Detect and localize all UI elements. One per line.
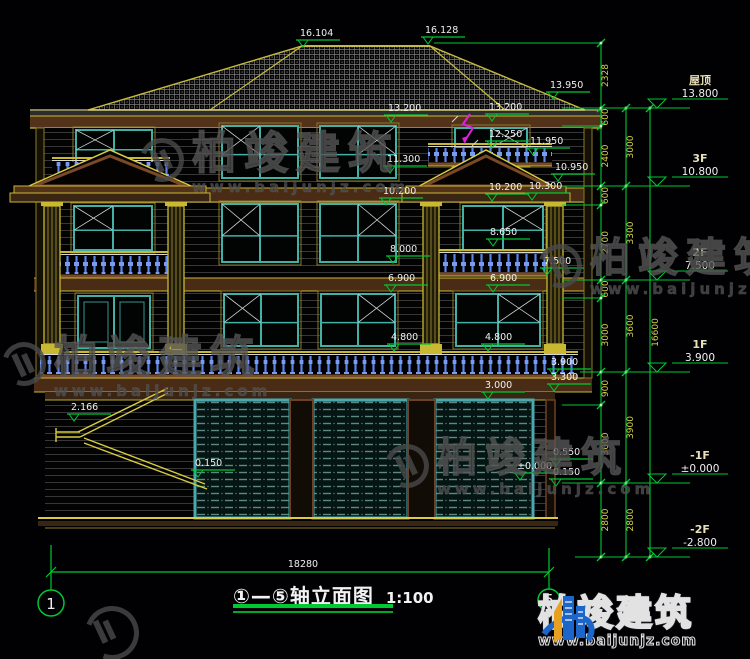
elevation-flag: 16.128 (421, 25, 465, 44)
axis-bubble-1: 1 (38, 590, 64, 616)
cad-elevation-sheet: 2328600240060027006003000900300028003000… (0, 0, 750, 659)
elevation-value: 3.900 (551, 357, 578, 368)
elevation-value: 3.300 (551, 372, 578, 383)
dimension-text: 2400 (601, 144, 611, 167)
hip-roof (88, 46, 585, 110)
column (165, 198, 187, 354)
elevation-value: 7.500 (544, 256, 571, 267)
dimension-text: 2328 (601, 64, 611, 87)
level-name: -2F (690, 523, 710, 536)
elevation-value: 13.200 (388, 103, 421, 114)
level-name: 屋顶 (689, 74, 711, 87)
elevation-value: 4.800 (391, 332, 418, 343)
elevation-value: 11.950 (530, 136, 563, 147)
svg-text:1: 1 (46, 595, 56, 613)
level-elevation: 7.500 (685, 260, 715, 272)
elevation-flag: 16.104 (296, 28, 340, 47)
column (544, 198, 566, 354)
elevation-value: 10.200 (489, 182, 522, 193)
elevation-value: 4.800 (485, 332, 512, 343)
window (317, 123, 399, 181)
level-name: -1F (690, 449, 710, 462)
elevation-value: 10.200 (383, 186, 416, 197)
dimension-text: 3000 (626, 135, 636, 158)
balustrade (40, 352, 578, 378)
brand-logo-icon (534, 586, 596, 656)
brand-logo: 柏竣建筑 www.baijunjz.com (534, 586, 750, 658)
dimension-text: 600 (601, 187, 611, 204)
elevation-value: ±0.000 (517, 461, 552, 472)
elevation-value: 13.950 (550, 80, 583, 91)
elevation-value: 11.300 (387, 154, 420, 165)
elevation-value: 3.000 (485, 380, 512, 391)
level-marker: 屋顶13.800 (601, 74, 728, 108)
elevation-value: 8.000 (390, 244, 417, 255)
dimension-text: 3300 (626, 221, 636, 244)
level-elevation: -2.800 (683, 537, 717, 549)
window (71, 203, 155, 253)
window (75, 293, 153, 351)
column (420, 198, 442, 354)
dimension-text: 2800 (626, 508, 636, 531)
dimension-text: 16600 (651, 318, 661, 347)
dimension-text: 600 (601, 108, 611, 125)
elevation-value: 16.104 (300, 28, 333, 39)
dimension-text: 2800 (601, 508, 611, 531)
level-name: 2F (692, 246, 707, 259)
level-marker: -2F-2.800 (601, 523, 728, 557)
elevation-drawing: 2328600240060027006003000900300028003000… (0, 0, 750, 659)
dimension-text: 3600 (626, 314, 636, 337)
elevation-value: 10.950 (555, 162, 588, 173)
elevation-value: 2.166 (71, 402, 98, 413)
dimension-text: 900 (601, 380, 611, 397)
window (219, 201, 301, 265)
elevation-value: 0.150 (195, 458, 222, 469)
elevation-value: 0.150 (553, 467, 580, 478)
level-elevation: 3.900 (685, 352, 715, 364)
column (41, 198, 63, 354)
elevation-value: 0.550 (553, 447, 580, 458)
elevation-value: 8.650 (490, 227, 517, 238)
dimension-text: 2700 (601, 231, 611, 254)
dimension-text: 3000 (601, 323, 611, 346)
garage-doors (195, 400, 555, 518)
overall-dimension-text: 18280 (288, 559, 318, 570)
elevation-value: 13.200 (489, 102, 522, 113)
level-name: 1F (692, 338, 707, 351)
level-marker: 2F7.500 (601, 246, 728, 280)
level-elevation: 13.800 (682, 88, 719, 100)
title-underline-thin (233, 611, 393, 613)
dimension-text: 3900 (626, 416, 636, 439)
level-name: 3F (692, 152, 707, 165)
drawing-scale: 1:100 (386, 589, 434, 607)
elevation-value: 12.250 (489, 129, 522, 140)
level-marker: 1F3.900 (601, 338, 728, 372)
dimension-text: 600 (601, 280, 611, 297)
title-underline (233, 604, 393, 608)
level-marker: 3F10.800 (601, 152, 728, 186)
elevation-value: 6.900 (388, 273, 415, 284)
level-elevation: ±0.000 (681, 463, 720, 475)
elevation-value: 16.128 (425, 25, 458, 36)
window (221, 291, 301, 349)
elevation-value: 10.300 (529, 181, 562, 192)
level-elevation: 10.800 (682, 166, 719, 178)
level-marker: -1F±0.000 (601, 449, 728, 483)
window (318, 291, 398, 349)
elevation-value: 6.900 (490, 273, 517, 284)
window (219, 123, 301, 181)
dimension-text: 3000 (601, 432, 611, 455)
